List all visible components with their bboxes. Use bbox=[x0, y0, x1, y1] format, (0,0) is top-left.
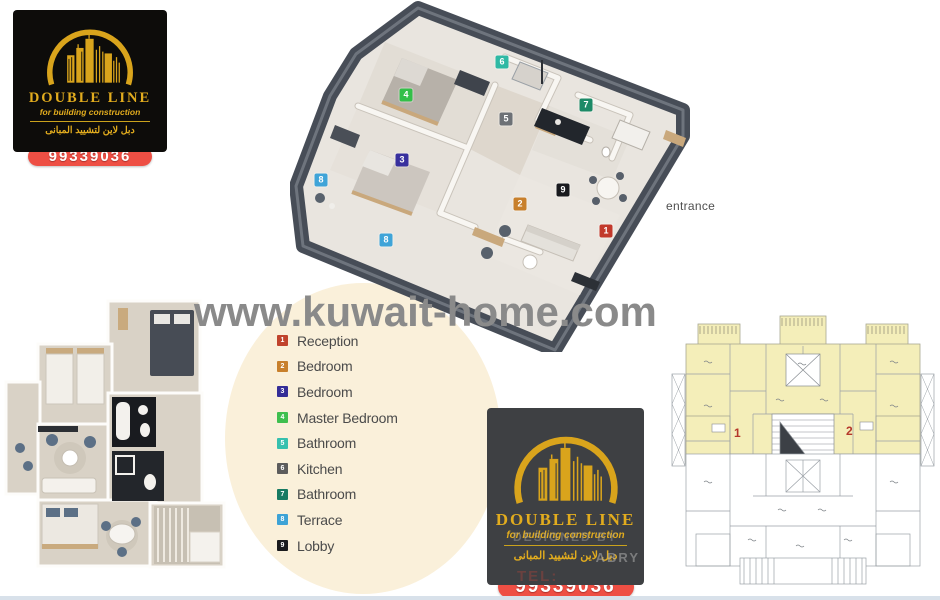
brand-tagline: for building construction bbox=[40, 107, 141, 117]
legend-item-bathroom: 7Bathroom bbox=[277, 482, 398, 508]
watermark-text: www.kuwait-home.com bbox=[194, 288, 714, 336]
legend-item-kitchen: 6Kitchen bbox=[277, 456, 398, 482]
room-marker-2: 2 bbox=[514, 198, 527, 211]
logo-bottom-box: DOUBLE LINE for building construction دب… bbox=[487, 408, 644, 585]
legend-swatch: 1 bbox=[277, 335, 288, 346]
logo-bottom: DOUBLE LINE for building construction دب… bbox=[487, 408, 644, 598]
plan-cad: 1 2 bbox=[668, 296, 938, 596]
legend-label: Master Bedroom bbox=[297, 410, 398, 426]
logo-top-box: DOUBLE LINE for building construction دب… bbox=[13, 10, 167, 152]
legend-label: Bedroom bbox=[297, 384, 352, 400]
logo-top: DOUBLE LINE for building construction دب… bbox=[13, 10, 167, 166]
buildings-arch-icon bbox=[42, 26, 138, 90]
brand-divider bbox=[30, 121, 150, 122]
room-marker-8: 8 bbox=[380, 234, 393, 247]
legend-label: Reception bbox=[297, 333, 358, 349]
ghost-designed-by: DESIGNED BY bbox=[513, 530, 618, 544]
buildings-arch-icon bbox=[511, 432, 621, 510]
brand-divider bbox=[504, 545, 626, 546]
legend-item-master-bedroom: 4Master Bedroom bbox=[277, 405, 398, 431]
legend-label: Bathroom bbox=[297, 486, 356, 502]
flyer-page: { "page": { "background": "#ffffff", "bo… bbox=[0, 0, 940, 600]
room-marker-9: 9 bbox=[557, 184, 570, 197]
legend-item-bedroom: 3Bedroom bbox=[277, 379, 398, 405]
legend-item-lobby: 9Lobby bbox=[277, 533, 398, 559]
legend-swatch: 6 bbox=[277, 463, 288, 474]
legend-swatch: 3 bbox=[277, 386, 288, 397]
ghost-designer-name: ABRY bbox=[596, 550, 640, 565]
legend-label: Terrace bbox=[297, 512, 342, 528]
room-marker-4: 4 bbox=[400, 89, 413, 102]
legend-swatch: 2 bbox=[277, 361, 288, 372]
cad-unit-1: 1 bbox=[734, 426, 741, 440]
legend-label: Kitchen bbox=[297, 461, 342, 477]
cad-skylight bbox=[786, 354, 820, 386]
legend-swatch: 7 bbox=[277, 489, 288, 500]
legend-item-terrace: 8Terrace bbox=[277, 507, 398, 533]
plan-top-down bbox=[2, 298, 230, 576]
ghost-tel: TEL: 50459622 bbox=[517, 568, 644, 585]
legend-label: Bathroom bbox=[297, 435, 356, 451]
legend-label: Bedroom bbox=[297, 358, 352, 374]
brand-name: DOUBLE LINE bbox=[496, 510, 636, 530]
brand-name: DOUBLE LINE bbox=[29, 90, 151, 107]
cad-lower-half bbox=[686, 454, 920, 584]
legend-item-bathroom: 5Bathroom bbox=[277, 430, 398, 456]
legend-swatch: 8 bbox=[277, 514, 288, 525]
legend-item-bedroom: 2Bedroom bbox=[277, 354, 398, 380]
room-marker-3: 3 bbox=[396, 154, 409, 167]
cad-staircase bbox=[772, 414, 834, 460]
cad-unit-2: 2 bbox=[846, 424, 853, 438]
brand-arabic: دبل لاين لتشييد المبانى bbox=[45, 125, 135, 136]
room-marker-5: 5 bbox=[500, 113, 513, 126]
bottom-page-strip bbox=[0, 596, 940, 600]
legend-list: 1Reception2Bedroom3Bedroom4Master Bedroo… bbox=[277, 328, 398, 558]
room-marker-8: 8 bbox=[315, 174, 328, 187]
room-marker-1: 1 bbox=[600, 225, 613, 238]
legend-item-reception: 1Reception bbox=[277, 328, 398, 354]
room-marker-7: 7 bbox=[580, 99, 593, 112]
legend-swatch: 9 bbox=[277, 540, 288, 551]
legend-swatch: 5 bbox=[277, 438, 288, 449]
legend-label: Lobby bbox=[297, 538, 334, 554]
entrance-label: entrance bbox=[666, 199, 715, 213]
room-marker-6: 6 bbox=[496, 56, 509, 69]
legend-swatch: 4 bbox=[277, 412, 288, 423]
